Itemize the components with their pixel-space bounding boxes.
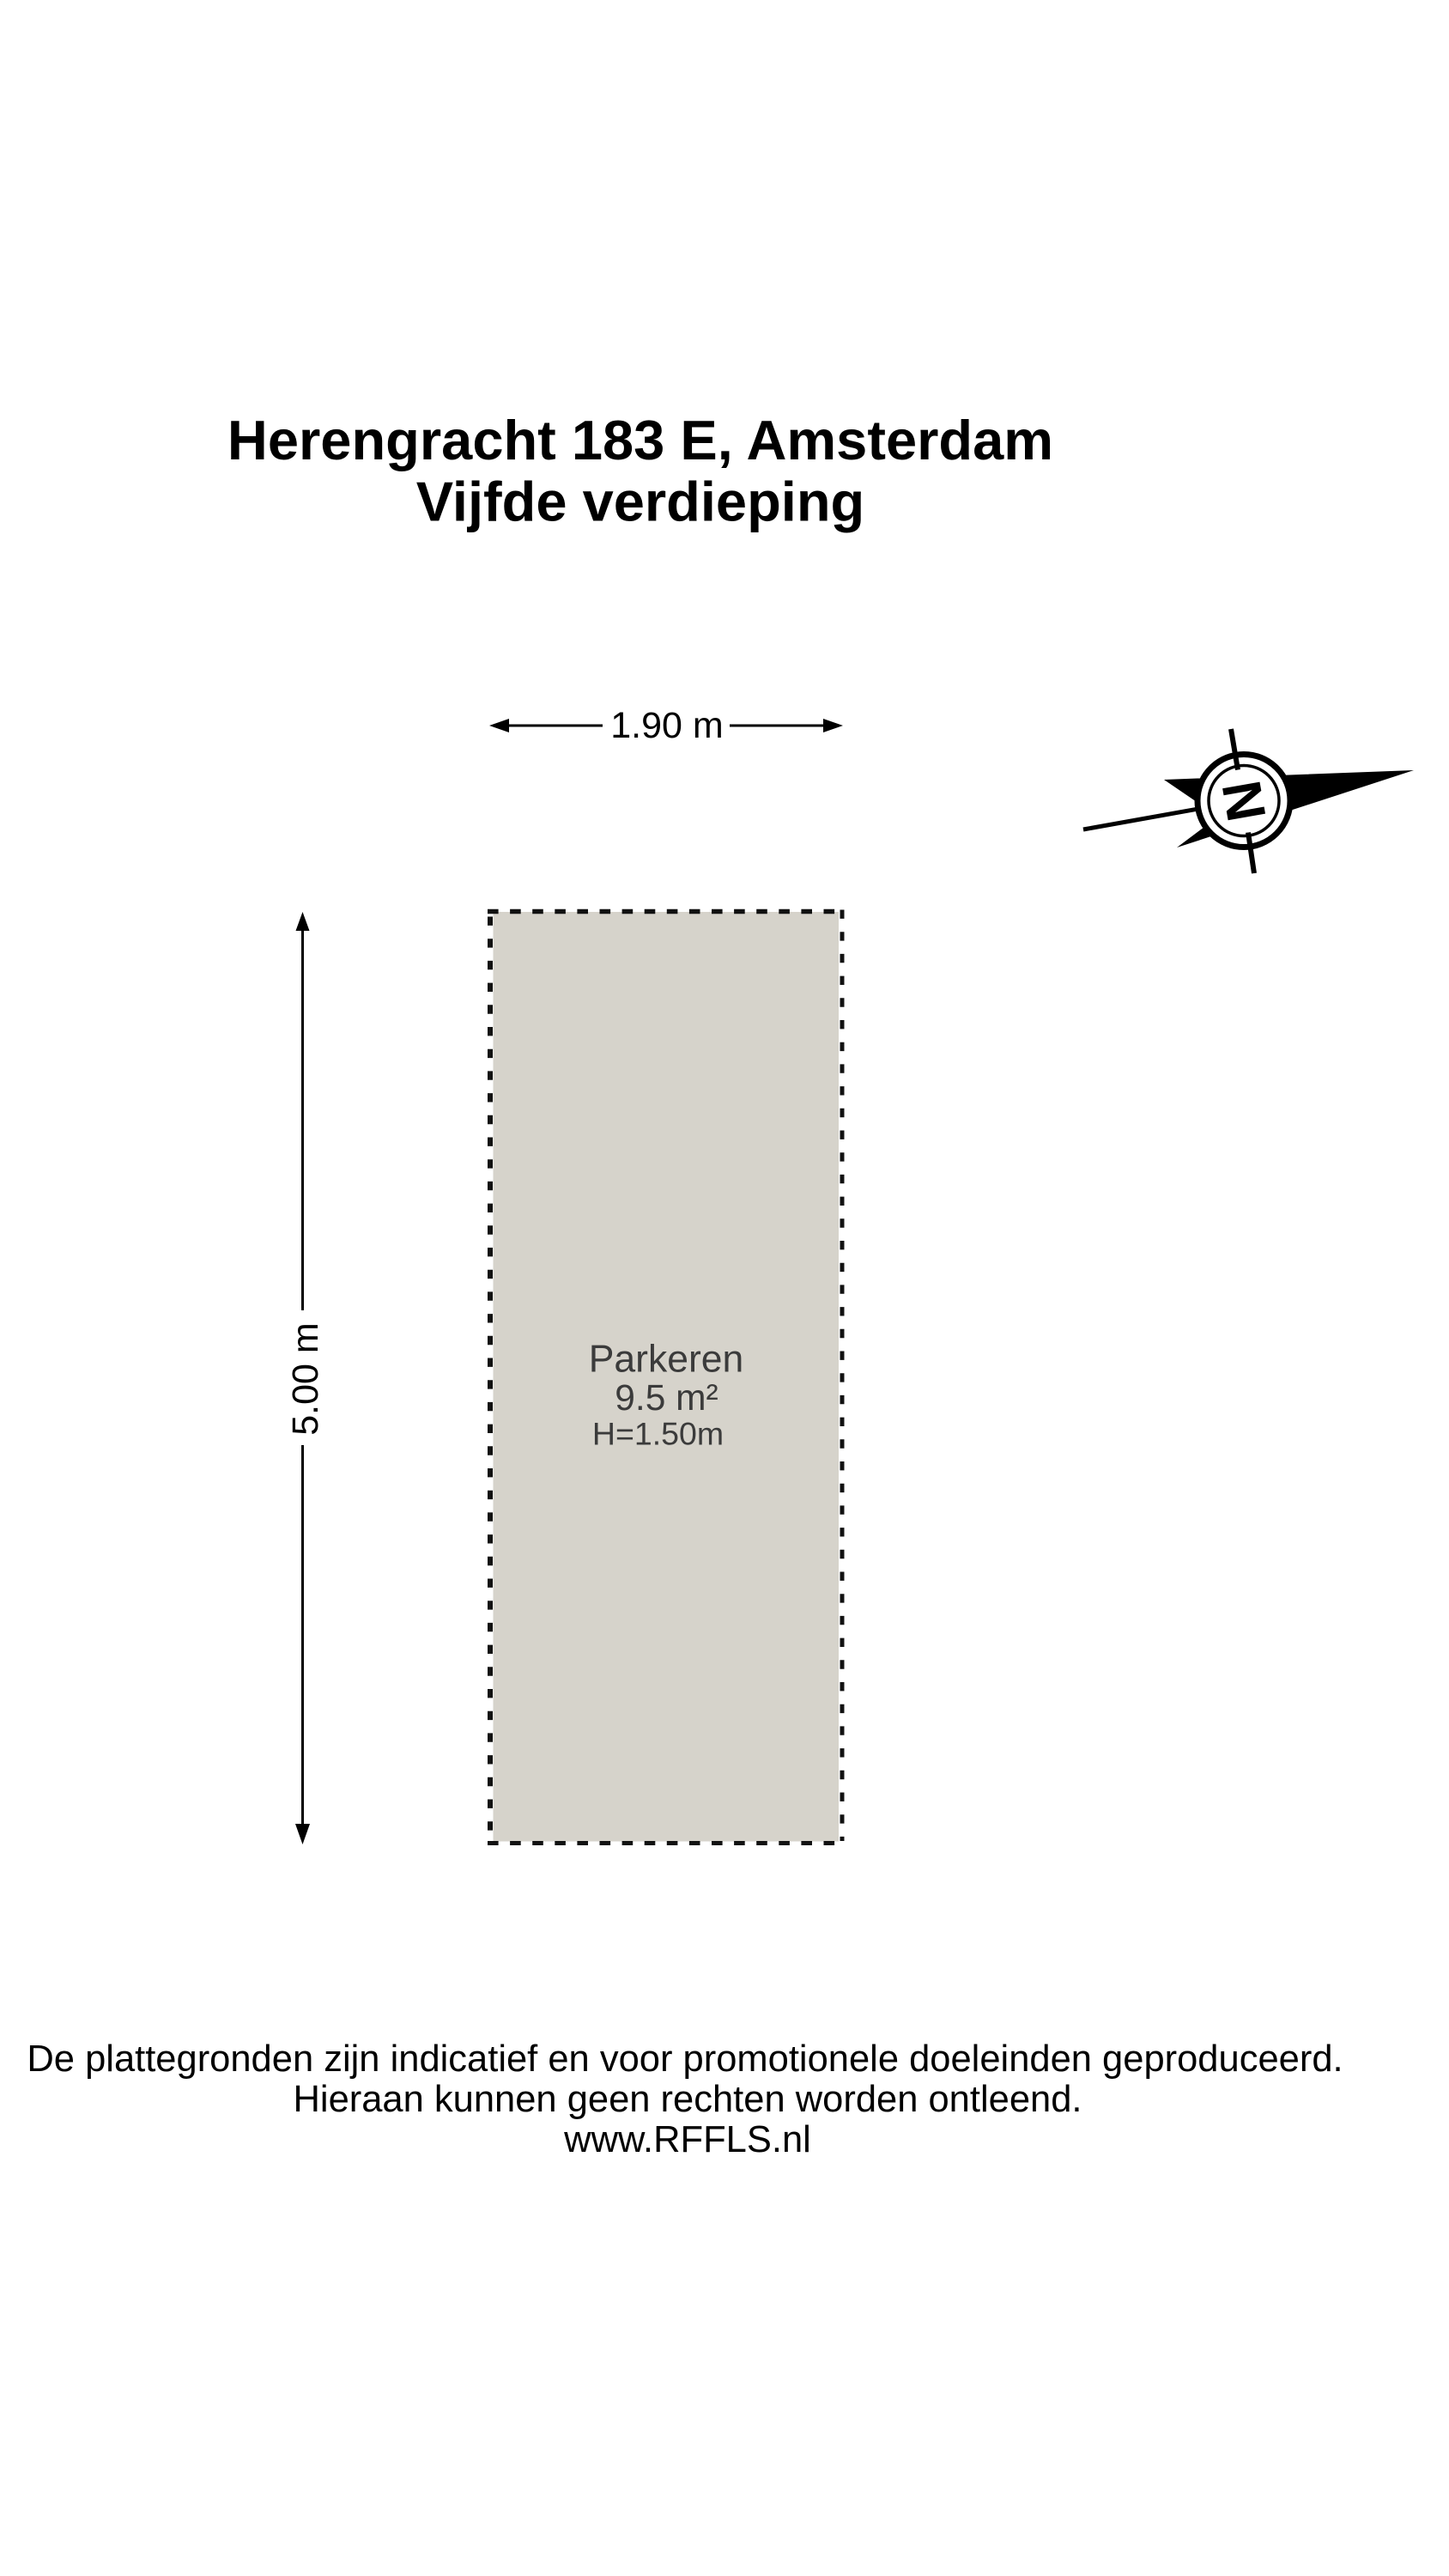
svg-text:H=1.50m: H=1.50m (592, 1416, 724, 1452)
svg-text:Hieraan kunnen geen rechten wo: Hieraan kunnen geen rechten worden ontle… (293, 2079, 1082, 2120)
svg-text:Herengracht 183 E, Amsterdam: Herengracht 183 E, Amsterdam (227, 409, 1053, 471)
svg-text:Parkeren: Parkeren (589, 1339, 744, 1381)
svg-text:9.5 m²: 9.5 m² (615, 1378, 718, 1419)
svg-text:www.RFFLS.nl: www.RFFLS.nl (563, 2119, 811, 2160)
svg-text:5.00 m: 5.00 m (285, 1322, 326, 1435)
svg-text:1.90 m: 1.90 m (610, 705, 723, 746)
svg-text:De plattegronden zijn indicati: De plattegronden zijn indicatief en voor… (27, 2038, 1343, 2080)
svg-text:Vijfde verdieping: Vijfde verdieping (416, 471, 865, 533)
